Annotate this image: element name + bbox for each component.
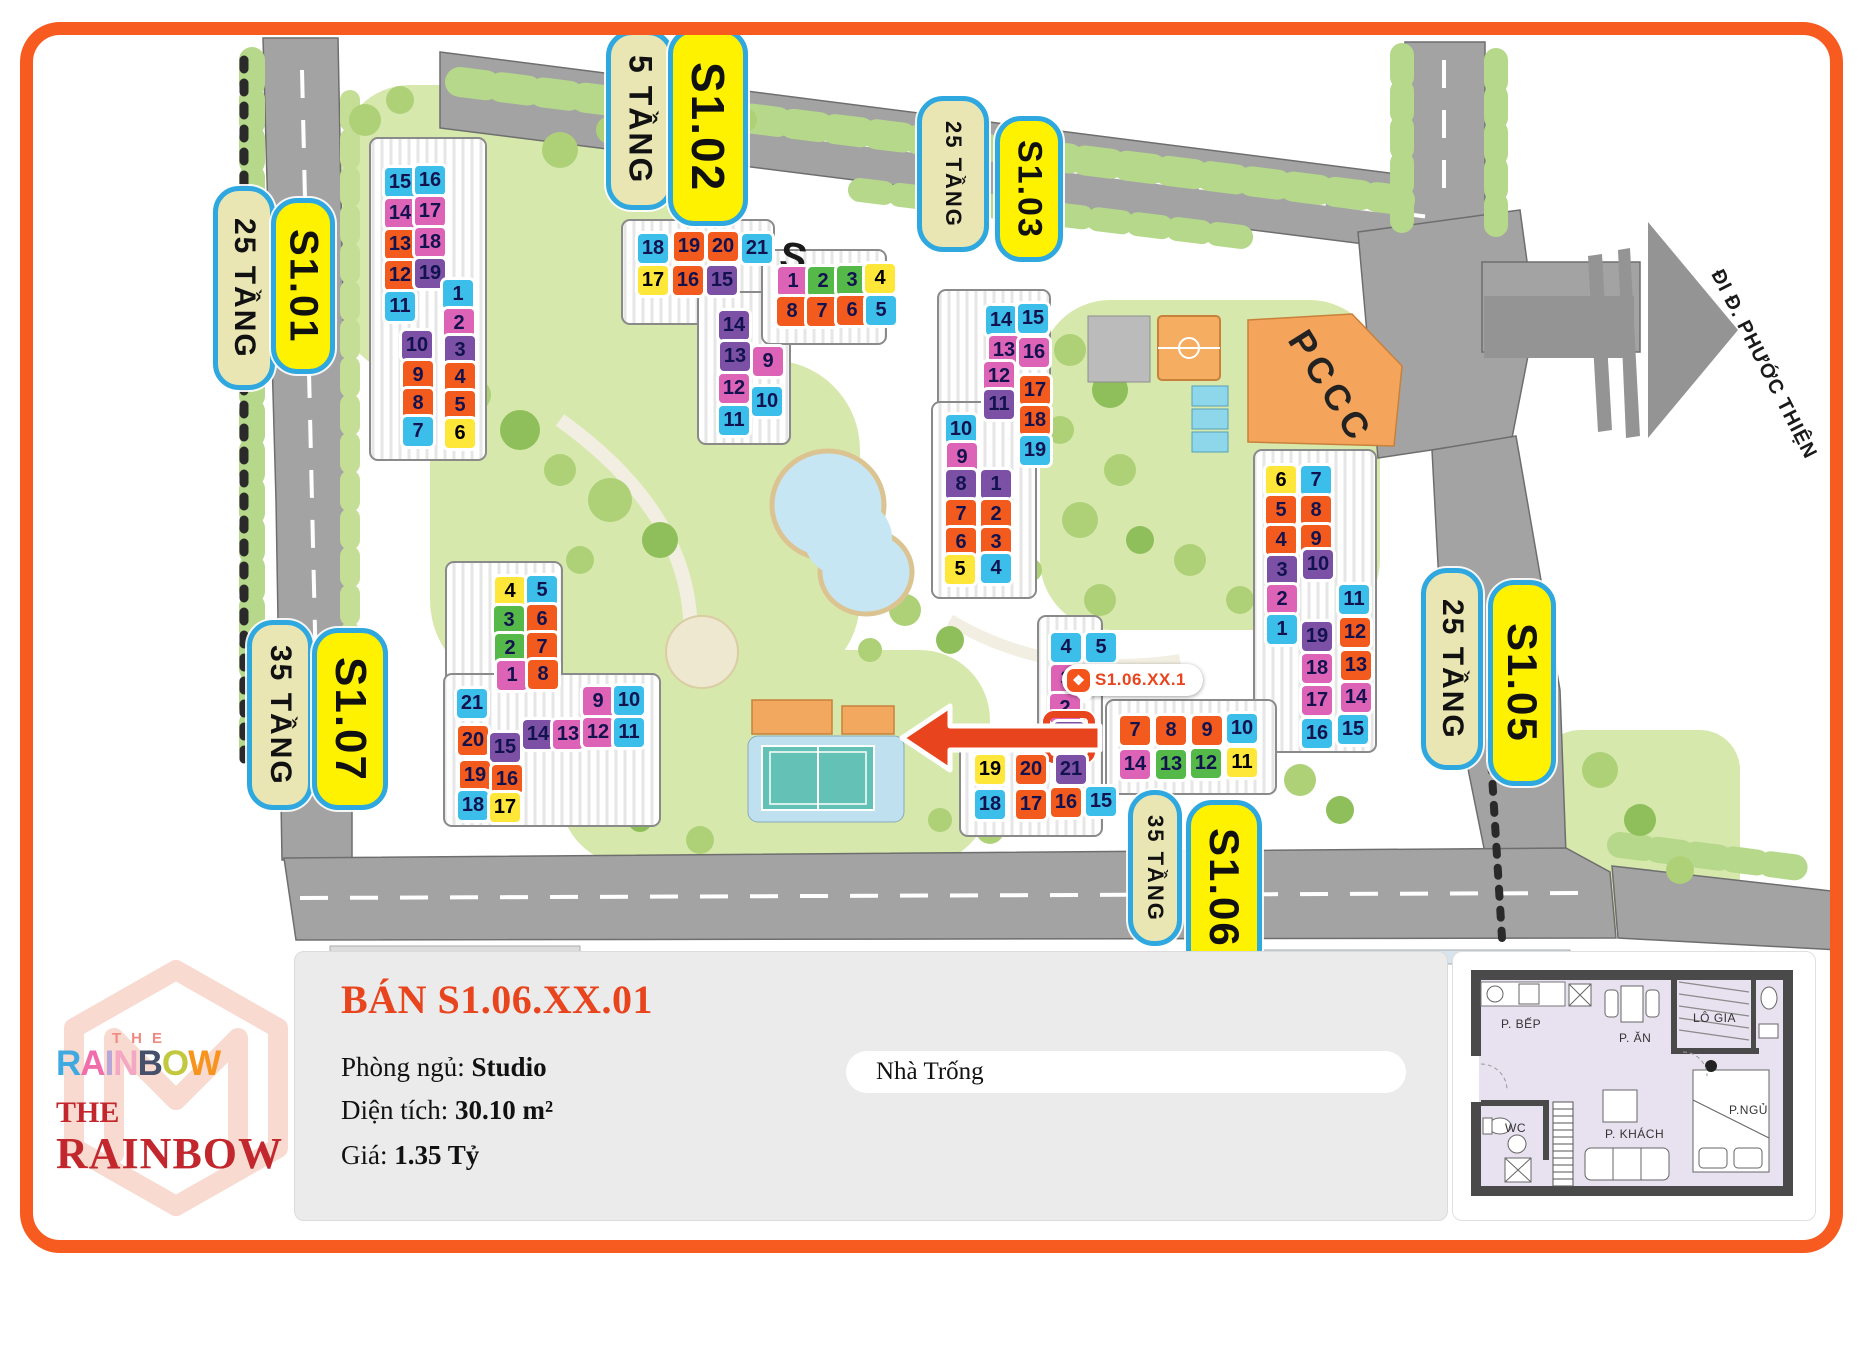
map-label-25tang-s105: 25 TẦNG [1421,568,1483,770]
selected-unit-pointer-arrow [896,698,1108,778]
logo-the-serif: THE [56,1096,119,1130]
page-frame: PCCC S 151614171318121911121 [20,22,1843,1253]
tower-labels-layer: 25 TẦNGS1.015 TẦNGS1.0225 TẦNGS1.0325 TẦ… [20,22,1843,965]
map-label-5tang-s102: 5 TẦNG [606,30,674,210]
rainbow-logo: THE RAINBOW THE RAINBOW [52,956,300,1218]
info-panel: BÁN S1.06.XX.01 Phòng ngủ: Studio Diện t… [294,951,1448,1221]
area-field: Diện tích: 30.10 m² [341,1095,553,1126]
room-bedroom: P.NGỦ [1729,1102,1768,1117]
bedroom-label: Phòng ngủ: [341,1052,465,1082]
area-label: Diện tích: [341,1095,448,1125]
map-label-35tang-s106: 35 TẦNG [1128,790,1182,946]
tooltip-unit-code: S1.06.XX.1 [1095,670,1186,690]
map-label-s101: S1.01 [271,198,335,374]
logo-letter-R: R [56,1044,80,1083]
logo-letter-I: I [105,1044,114,1083]
bedroom-field: Phòng ngủ: Studio [341,1052,547,1083]
map-label-35tang-s107: 35 TẦNG [247,620,313,810]
map-label-25tang-s101: 25 TẦNG [213,186,275,390]
logo-letter-W: W [188,1044,220,1083]
status-field: Nhà Trống [846,1051,1406,1093]
price-label: Giá: [341,1140,388,1170]
logo-letter-N: N [113,1044,137,1083]
map-label-s105: S1.05 [1488,580,1556,786]
room-kitchen: P. BẾP [1501,1016,1541,1031]
room-living: P. KHÁCH [1605,1126,1664,1141]
logo-rainbow-colored: RAINBOW [56,1044,220,1084]
map-label-25tang-s103: 25 TẦNG [917,96,989,252]
map-label-s102: S1.02 [668,28,748,226]
site-map: PCCC S 151614171318121911121 [20,22,1843,965]
unit-tooltip[interactable]: ❖ S1.06.XX.1 [1062,664,1203,696]
floorplan-drawing: P. BẾP P. ĂN LÔ GIA WC P. KHÁCH P.NGỦ [1453,952,1815,1220]
project-logo-icon: ❖ [1067,669,1090,692]
logo-letter-B: B [138,1044,162,1083]
logo-letter-O: O [162,1044,188,1083]
price-field: Giá: 1.35 Tỷ [341,1140,479,1171]
floorplan-card: P. BẾP P. ĂN LÔ GIA WC P. KHÁCH P.NGỦ [1452,951,1816,1221]
map-label-s103: S1.03 [995,116,1063,262]
room-loggia: LÔ GIA [1693,1010,1736,1025]
area-value: 30.10 m² [455,1095,553,1125]
map-label-s106: S1.06 [1186,800,1262,965]
logo-rainbow-serif: RAINBOW [56,1128,283,1179]
room-wc: WC [1505,1121,1526,1135]
room-dining: P. ĂN [1619,1030,1651,1045]
logo-letter-A: A [80,1044,104,1083]
price-value: 1.35 Tỷ [394,1140,479,1170]
bedroom-value: Studio [472,1052,547,1082]
map-label-s107: S1.07 [312,628,388,810]
listing-title: BÁN S1.06.XX.01 [341,976,653,1023]
